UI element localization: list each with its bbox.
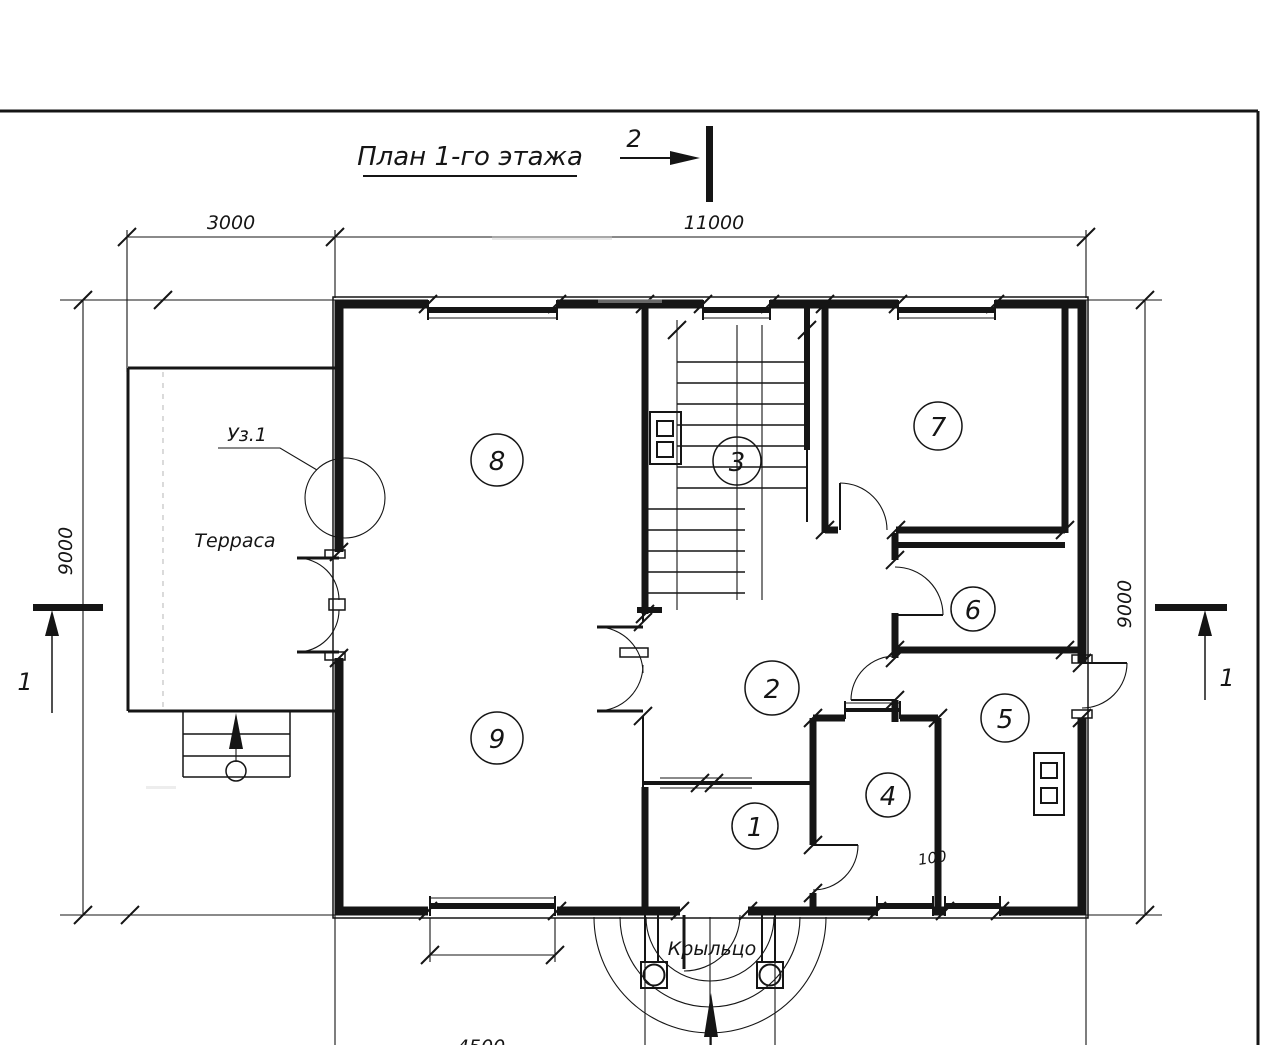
room-circle-2: 2 — [745, 661, 799, 715]
window-room4-bottom — [877, 896, 933, 916]
porch-column-icon — [760, 965, 781, 986]
door-room5-hall — [851, 656, 895, 700]
floor-plan-svg: План 1-го этажа 2 1 1 3000 11000 9000 — [0, 0, 1280, 1045]
window-room5-bottom — [945, 896, 1000, 916]
dim-opening-100: 100 — [917, 847, 948, 869]
dim-terrace-width: 3000 — [207, 212, 255, 234]
room-circle-9: 9 — [471, 712, 523, 764]
section-mark-2: 2 — [620, 125, 713, 202]
window-room8 — [428, 300, 557, 320]
section-mark-1-left: 1 — [17, 604, 103, 713]
room-circle-1: 1 — [732, 803, 778, 849]
section-mark-1-left-label: 1 — [17, 668, 32, 696]
terrace-label: Терраса — [194, 530, 275, 552]
electrical-panel-icon — [650, 412, 681, 464]
section-arrow-right-icon — [670, 151, 700, 165]
dim-right-height: 9000 — [1114, 580, 1136, 628]
porch-label: Крыльцо — [668, 938, 756, 960]
drawing-sheet: План 1-го этажа 2 1 1 3000 11000 9000 — [0, 0, 1280, 1045]
terrace-steps — [183, 712, 290, 781]
section-mark-1-right-label: 1 — [1219, 664, 1234, 692]
room-number: 8 — [489, 447, 506, 477]
plan-title: План 1-го этажа — [357, 142, 583, 172]
door-room9-double — [597, 627, 648, 711]
stairs-up-arrow-icon — [229, 713, 243, 749]
section-mark-2-label: 2 — [626, 125, 641, 153]
dim-bottom-window: 4500 — [457, 1036, 505, 1045]
window-room7 — [898, 300, 995, 320]
plan-title-block: План 1-го этажа — [357, 142, 583, 176]
detail-callout-label: Уз.1 — [227, 424, 267, 446]
room-number: 7 — [930, 413, 947, 443]
room-circle-8: 8 — [471, 434, 523, 486]
windows — [428, 300, 1000, 916]
window-stairs — [703, 300, 770, 320]
porch: Крыльцо — [594, 915, 826, 1045]
porch-up-arrow-icon — [704, 993, 718, 1037]
room-number: 3 — [729, 448, 746, 478]
porch-column-icon — [644, 965, 665, 986]
boiler-panel-icon — [1034, 753, 1064, 815]
door-terrace-double — [297, 550, 345, 660]
room-circle-6: 6 — [951, 587, 995, 631]
room-circle-5: 5 — [981, 694, 1029, 742]
room-number: 6 — [965, 596, 982, 626]
door-room6 — [895, 567, 943, 615]
section-arrow-up-icon — [45, 610, 59, 636]
room-number: 4 — [880, 782, 897, 812]
door-room7 — [840, 483, 887, 530]
window-room9-bottom — [430, 896, 555, 916]
dim-building-width: 11000 — [684, 212, 744, 234]
room-circle-7: 7 — [914, 402, 962, 450]
sheet-frame — [0, 111, 1258, 1045]
detail-circle — [305, 458, 385, 538]
scan-artifacts — [146, 236, 662, 789]
dim-left-height: 9000 — [55, 527, 77, 575]
door-room4 — [813, 845, 858, 890]
room-number: 5 — [997, 705, 1014, 735]
dimension-ticks — [74, 228, 1154, 964]
section-arrow-up-icon — [1198, 610, 1212, 636]
section-mark-1-right: 1 — [1155, 604, 1235, 700]
room-number: 1 — [747, 813, 764, 843]
detail-callout: Уз.1 — [218, 424, 385, 538]
room-number: 2 — [764, 675, 781, 705]
room-circle-4: 4 — [866, 773, 910, 817]
interior-walls — [637, 300, 1082, 915]
room-number: 9 — [489, 725, 506, 755]
